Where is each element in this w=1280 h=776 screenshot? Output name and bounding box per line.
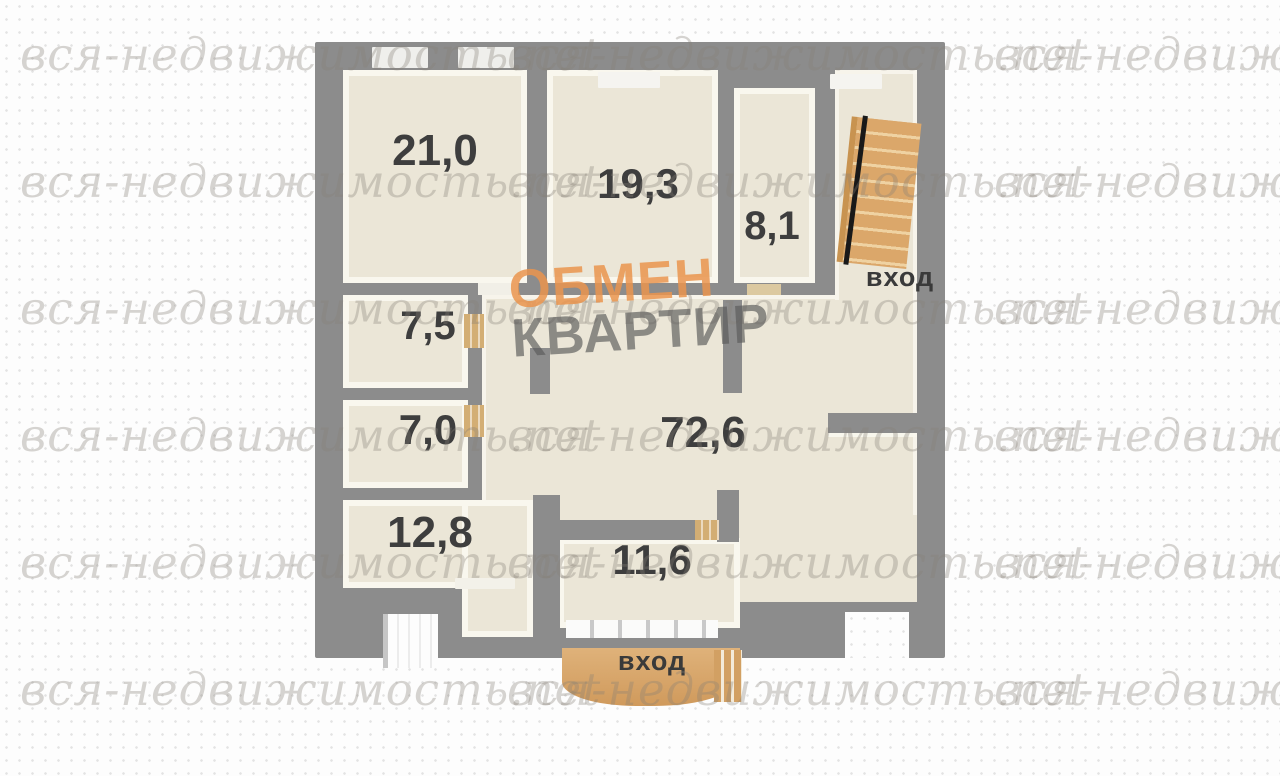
room-area-label: 7,0 bbox=[368, 406, 488, 454]
wall-between-bottom-rooms bbox=[533, 495, 560, 628]
room-area-label: 7,5 bbox=[368, 304, 488, 349]
room-top-right-small bbox=[734, 88, 815, 283]
window-row-bottom-center bbox=[566, 620, 718, 638]
central-hall-floor-upper bbox=[482, 295, 917, 515]
room-area-label: 8,1 bbox=[712, 204, 832, 249]
window-stair-hall bbox=[830, 74, 882, 89]
page-background: { "watermark": { "text": "вся-недвижимос… bbox=[0, 0, 1280, 720]
entrance-label-top: вход bbox=[845, 262, 955, 293]
wall-stub-right-center bbox=[723, 300, 742, 393]
window-top-left-2 bbox=[458, 47, 514, 68]
window-top-left-1 bbox=[372, 47, 428, 68]
room-area-label: 72,6 bbox=[623, 408, 783, 458]
wall-stub-left-center bbox=[530, 348, 550, 394]
room-area-label: 11,6 bbox=[572, 536, 732, 584]
floor-plan: 21,0 19,3 8,1 7,5 7,0 72,6 12,8 11,6 вхо… bbox=[0, 0, 1280, 720]
door-opening-hall bbox=[478, 283, 518, 295]
window-top-center bbox=[598, 72, 660, 88]
door-top-hall bbox=[747, 284, 781, 295]
bottom-right-doorway-notch bbox=[845, 612, 909, 658]
room-area-label: 21,0 bbox=[355, 126, 515, 176]
bottom-left-porch bbox=[383, 614, 438, 668]
wall-stub-lower-center bbox=[717, 490, 739, 542]
room-area-label: 12,8 bbox=[350, 508, 510, 558]
wall-stub-right-side bbox=[828, 413, 917, 433]
entrance-porch-steps bbox=[714, 650, 742, 702]
window-bottom-left bbox=[455, 578, 515, 589]
room-top-left bbox=[343, 70, 527, 283]
entrance-label-bottom: вход bbox=[597, 646, 707, 677]
room-area-label: 19,3 bbox=[558, 160, 718, 208]
